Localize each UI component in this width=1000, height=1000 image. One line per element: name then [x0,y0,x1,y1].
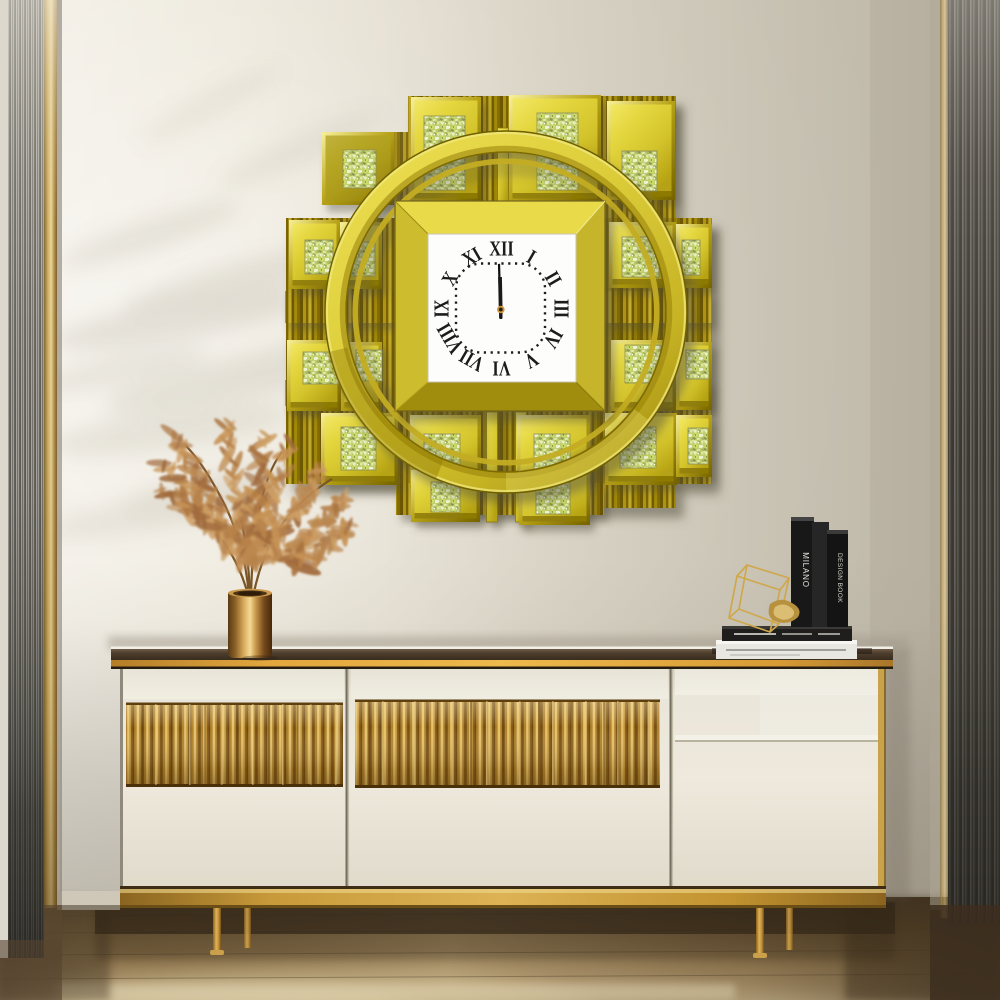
svg-text:IX: IX [431,299,454,318]
svg-text:MILANO: MILANO [801,552,810,587]
svg-text:III: III [549,299,572,318]
svg-text:XII: XII [489,238,514,261]
svg-text:DESIGN BOOK: DESIGN BOOK [836,553,843,603]
svg-text:VI: VI [492,356,510,379]
